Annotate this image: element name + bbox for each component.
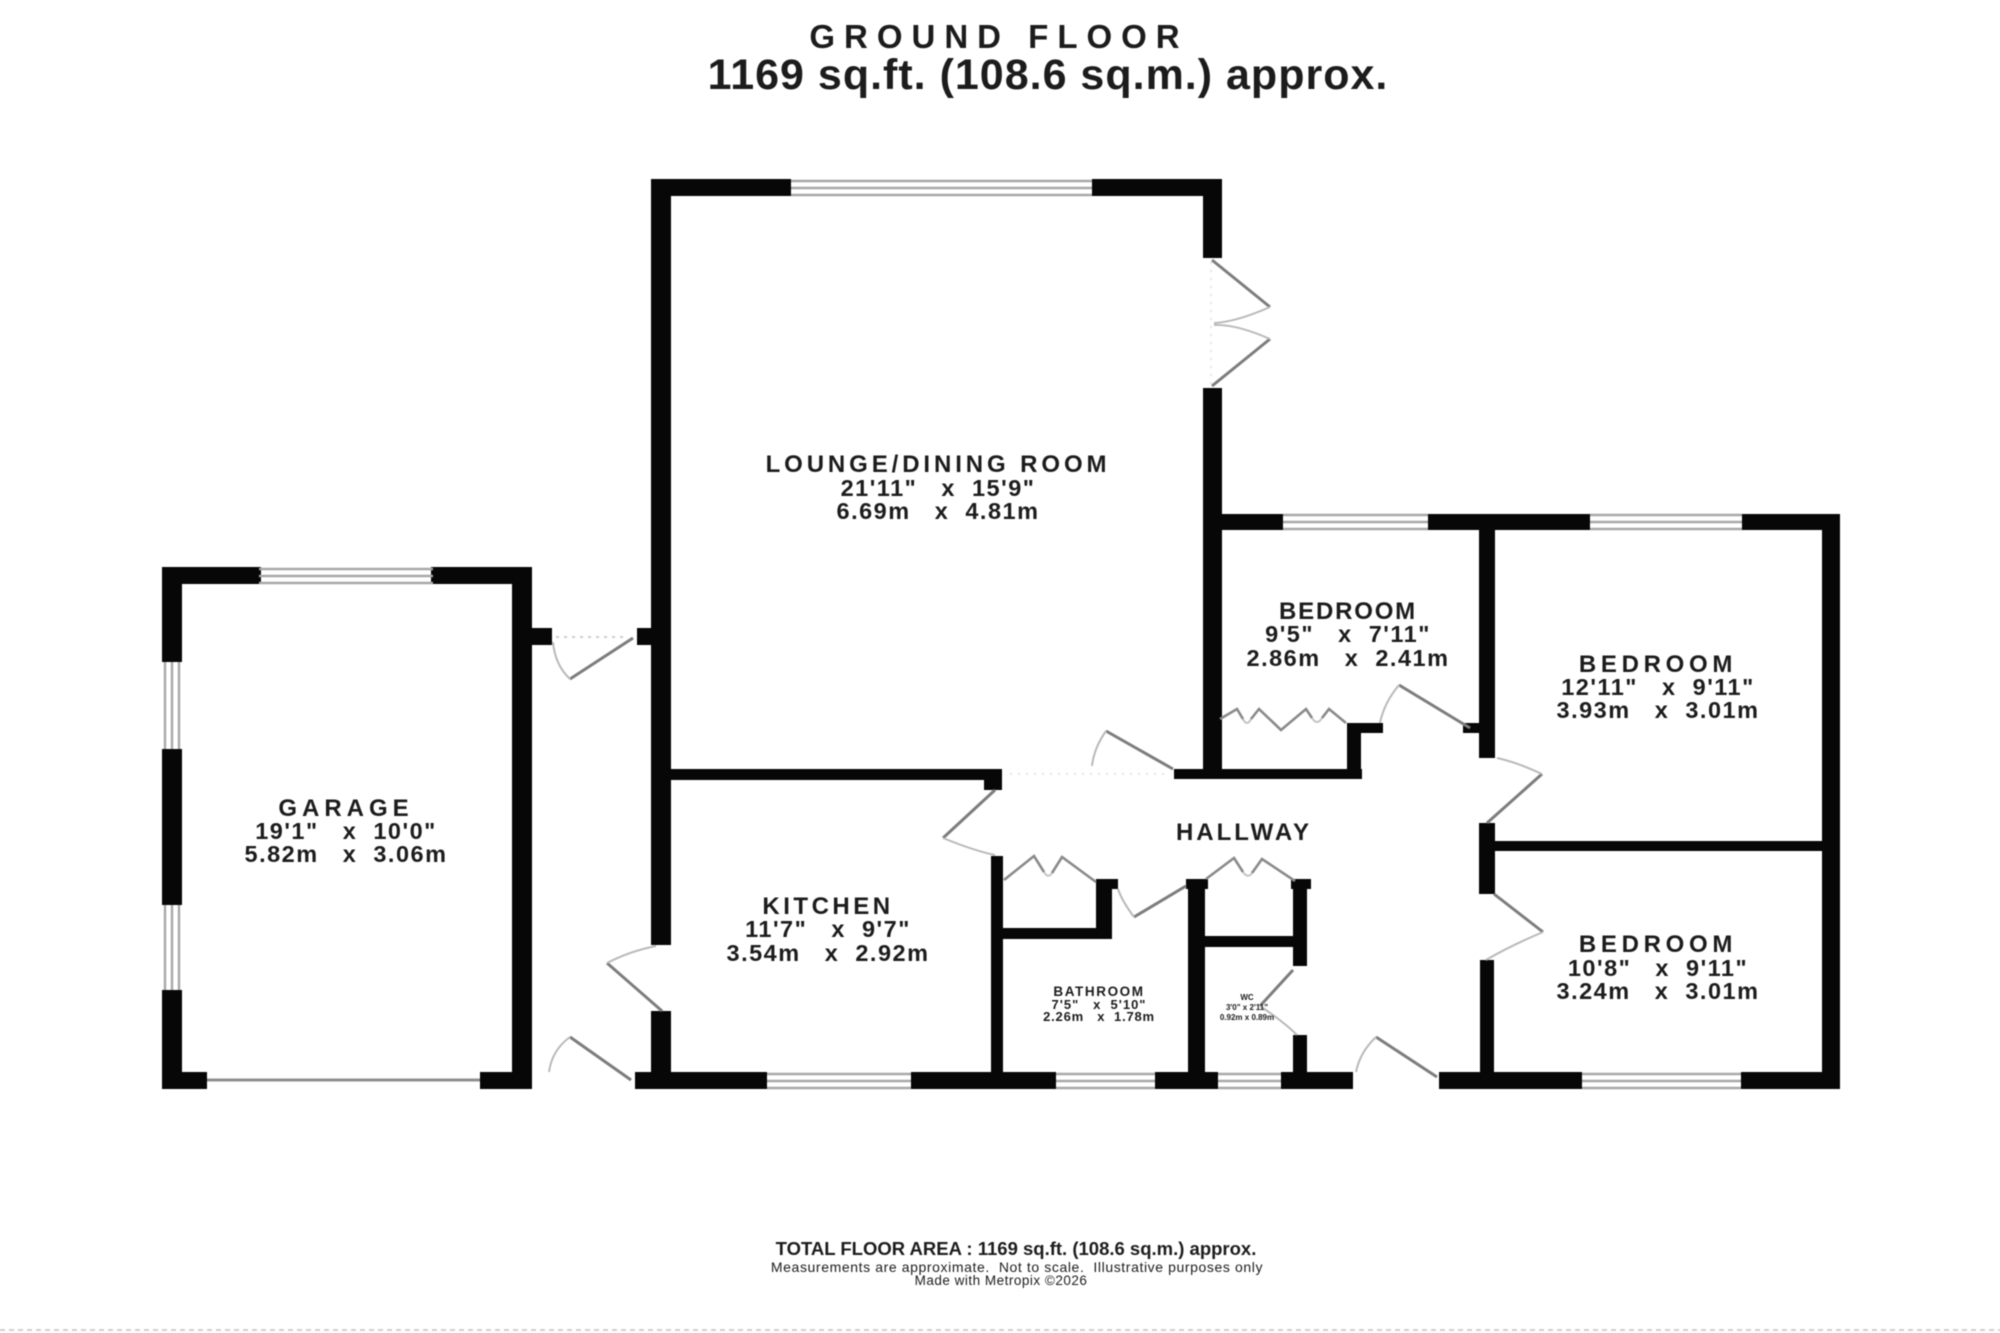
- svg-text:6.69m x 4.81m: 6.69m x 4.81m: [837, 498, 1040, 524]
- svg-text:TOTAL FLOOR AREA : 1169 sq.ft.: TOTAL FLOOR AREA : 1169 sq.ft. (108.6 sq…: [776, 1238, 1257, 1259]
- svg-text:3.54m x 2.92m: 3.54m x 2.92m: [727, 940, 930, 966]
- svg-text:2.86m x 2.41m: 2.86m x 2.41m: [1247, 645, 1450, 671]
- svg-text:HALLWAY: HALLWAY: [1176, 819, 1312, 846]
- svg-text:11'7" x 9'7": 11'7" x 9'7": [745, 916, 911, 942]
- svg-text:3'0" x 2'11": 3'0" x 2'11": [1226, 1003, 1268, 1012]
- svg-text:3.24m x 3.01m: 3.24m x 3.01m: [1557, 978, 1760, 1004]
- svg-text:1169 sq.ft. (108.6 sq.m.) appr: 1169 sq.ft. (108.6 sq.m.) approx.: [708, 51, 1389, 99]
- svg-text:3.93m x 3.01m: 3.93m x 3.01m: [1557, 697, 1760, 723]
- svg-text:9'5" x 7'11": 9'5" x 7'11": [1265, 621, 1431, 647]
- svg-text:BEDROOM: BEDROOM: [1579, 931, 1737, 958]
- svg-text:Made with Metropix ©2026: Made with Metropix ©2026: [915, 1273, 1088, 1288]
- svg-text:0.92m x 0.89m: 0.92m x 0.89m: [1220, 1013, 1274, 1022]
- svg-text:2.26m x 1.78m: 2.26m x 1.78m: [1043, 1009, 1155, 1024]
- svg-text:LOUNGE/DINING ROOM: LOUNGE/DINING ROOM: [766, 451, 1111, 478]
- svg-text:5.82m x 3.06m: 5.82m x 3.06m: [245, 841, 448, 867]
- svg-text:WC: WC: [1240, 993, 1254, 1002]
- svg-text:GROUND FLOOR: GROUND FLOOR: [809, 18, 1188, 55]
